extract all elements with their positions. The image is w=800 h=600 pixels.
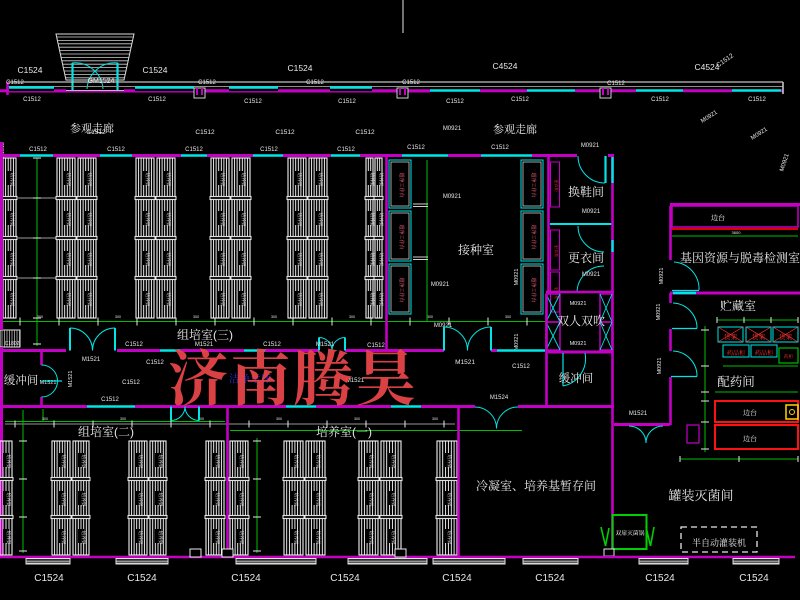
svg-text:接种室: 接种室 — [458, 241, 494, 258]
svg-text:C1512: C1512 — [607, 78, 625, 87]
svg-text:培养架: 培养架 — [368, 455, 375, 469]
svg-text:C1512: C1512 — [148, 94, 166, 103]
svg-text:培养架: 培养架 — [378, 213, 385, 227]
svg-text:M0921: M0921 — [570, 299, 587, 307]
svg-text:更衣间: 更衣间 — [568, 249, 604, 266]
svg-text:M0921: M0921 — [657, 268, 665, 285]
svg-text:C1512: C1512 — [244, 96, 262, 105]
svg-text:培养架: 培养架 — [60, 493, 67, 507]
svg-text:缓冲间: 缓冲间 — [559, 370, 594, 386]
svg-text:C1524: C1524 — [535, 569, 565, 584]
svg-text:培养架: 培养架 — [296, 293, 303, 307]
svg-text:培养架: 培养架 — [9, 173, 16, 187]
svg-text:C1524: C1524 — [127, 569, 157, 584]
svg-text:培养架: 培养架 — [368, 531, 375, 545]
svg-text:培养架: 培养架 — [165, 253, 172, 267]
svg-text:300: 300 — [115, 315, 121, 320]
svg-text:培养架: 培养架 — [165, 173, 172, 187]
svg-text:培养架: 培养架 — [296, 253, 303, 267]
svg-text:超净工作台: 超净工作台 — [398, 224, 405, 249]
svg-text:培养架: 培养架 — [137, 531, 144, 545]
svg-text:半自动灌装机: 半自动灌装机 — [692, 536, 746, 549]
svg-text:C1512: C1512 — [355, 127, 375, 136]
svg-text:培养架: 培养架 — [317, 253, 324, 267]
svg-text:C1512: C1512 — [86, 127, 106, 136]
svg-text:培养架: 培养架 — [144, 253, 151, 267]
svg-text:培养架: 培养架 — [5, 531, 12, 545]
svg-text:冷凝室、培养基暂存间: 冷凝室、培养基暂存间 — [476, 477, 596, 494]
svg-text:C1512: C1512 — [101, 394, 119, 403]
svg-text:C1512: C1512 — [651, 94, 669, 103]
svg-text:培养架: 培养架 — [317, 173, 324, 187]
svg-text:更衣柜: 更衣柜 — [553, 245, 560, 258]
svg-text:配药间: 配药间 — [717, 372, 755, 390]
svg-text:培养架: 培养架 — [293, 455, 300, 469]
svg-text:培养架: 培养架 — [368, 493, 375, 507]
svg-text:培养架: 培养架 — [296, 173, 303, 187]
svg-text:超净工作台: 超净工作台 — [530, 277, 537, 302]
svg-text:培养架: 培养架 — [65, 213, 72, 227]
svg-text:培养架: 培养架 — [9, 213, 16, 227]
svg-text:培养架: 培养架 — [165, 293, 172, 307]
svg-text:培养架: 培养架 — [317, 293, 324, 307]
svg-text:货架: 货架 — [724, 332, 738, 341]
svg-text:培养架: 培养架 — [219, 173, 226, 187]
svg-text:M1524: M1524 — [490, 392, 509, 401]
svg-text:C1524: C1524 — [142, 64, 167, 76]
svg-text:缓冲间: 缓冲间 — [4, 372, 39, 388]
svg-text:C1512: C1512 — [748, 94, 766, 103]
svg-text:超净工作台: 超净工作台 — [530, 224, 537, 249]
svg-text:培养架: 培养架 — [86, 293, 93, 307]
svg-text:3600: 3600 — [732, 230, 742, 236]
svg-text:培养架: 培养架 — [214, 531, 221, 545]
svg-text:培养架: 培养架 — [238, 493, 245, 507]
svg-text:C1524: C1524 — [231, 569, 261, 584]
svg-text:培养架: 培养架 — [219, 293, 226, 307]
svg-text:货架: 货架 — [752, 332, 766, 341]
svg-text:M0921: M0921 — [581, 140, 600, 149]
svg-text:更衣柜: 更衣柜 — [553, 179, 560, 192]
svg-text:C1512: C1512 — [107, 144, 125, 153]
svg-text:培养架: 培养架 — [65, 293, 72, 307]
svg-text:M0921: M0921 — [431, 279, 450, 288]
svg-text:培养架: 培养架 — [157, 531, 164, 545]
svg-text:参观走廊: 参观走廊 — [493, 121, 537, 137]
svg-text:培养架: 培养架 — [293, 493, 300, 507]
svg-text:培养架: 培养架 — [317, 213, 324, 227]
svg-text:培养架: 培养架 — [9, 293, 16, 307]
svg-text:C1512: C1512 — [511, 94, 529, 103]
svg-text:C1524: C1524 — [442, 569, 472, 584]
svg-text:C1512: C1512 — [125, 339, 143, 348]
svg-text:C1524: C1524 — [330, 569, 360, 584]
svg-text:培养架: 培养架 — [390, 531, 397, 545]
svg-text:培养架: 培养架 — [86, 173, 93, 187]
svg-text:培养架: 培养架 — [240, 213, 247, 227]
svg-text:培养架: 培养架 — [238, 455, 245, 469]
svg-text:300: 300 — [193, 315, 199, 320]
svg-text:300: 300 — [37, 315, 43, 320]
svg-text:边台: 边台 — [711, 213, 725, 223]
svg-text:培养架: 培养架 — [214, 493, 221, 507]
svg-text:C1524: C1524 — [645, 569, 675, 584]
svg-text:药品柜: 药品柜 — [727, 348, 745, 357]
svg-text:培养架: 培养架 — [240, 253, 247, 267]
svg-text:M0921: M0921 — [512, 269, 520, 286]
svg-text:培养架: 培养架 — [293, 531, 300, 545]
svg-text:贮藏室: 贮藏室 — [720, 297, 756, 314]
svg-text:培养架: 培养架 — [390, 455, 397, 469]
svg-text:培养架: 培养架 — [5, 493, 12, 507]
svg-text:C1524: C1524 — [34, 569, 64, 584]
svg-text:组培室(二): 组培室(二) — [78, 423, 134, 440]
svg-text:换鞋间: 换鞋间 — [568, 183, 604, 200]
svg-text:C1512: C1512 — [337, 144, 355, 153]
svg-text:培养架: 培养架 — [86, 253, 93, 267]
svg-text:培养架: 培养架 — [86, 213, 93, 227]
svg-text:培养架: 培养架 — [390, 493, 397, 507]
svg-text:边台: 边台 — [743, 408, 757, 418]
svg-text:超净工作台: 超净工作台 — [530, 172, 537, 197]
svg-text:C1512: C1512 — [122, 377, 140, 386]
svg-text:M1521: M1521 — [455, 357, 475, 366]
svg-text:M1521: M1521 — [40, 378, 57, 386]
svg-text:培养架: 培养架 — [60, 455, 67, 469]
svg-text:培养架: 培养架 — [137, 493, 144, 507]
svg-text:C1512: C1512 — [306, 77, 324, 86]
svg-text:M0921: M0921 — [655, 358, 663, 375]
svg-text:培养架: 培养架 — [378, 293, 385, 307]
svg-text:C1524: C1524 — [17, 64, 42, 76]
svg-text:M0921: M0921 — [582, 269, 601, 278]
svg-text:M1521: M1521 — [629, 408, 648, 417]
svg-text:C1524: C1524 — [739, 569, 769, 584]
svg-text:C1512: C1512 — [23, 94, 41, 103]
svg-text:货架: 货架 — [779, 332, 793, 341]
svg-text:C1802: C1802 — [5, 340, 20, 347]
svg-text:C1512: C1512 — [275, 127, 295, 136]
svg-text:C1512: C1512 — [6, 77, 24, 86]
svg-text:培养架: 培养架 — [5, 455, 12, 469]
svg-text:C1512: C1512 — [29, 144, 47, 153]
svg-text:C1512: C1512 — [260, 144, 278, 153]
svg-text:药柜: 药柜 — [784, 353, 794, 360]
svg-text:培养架: 培养架 — [219, 253, 226, 267]
svg-text:C1512: C1512 — [407, 142, 425, 151]
svg-text:培养架: 培养架 — [9, 253, 16, 267]
svg-text:培养架: 培养架 — [446, 531, 453, 545]
svg-text:培养架: 培养架 — [144, 173, 151, 187]
svg-text:C1512: C1512 — [512, 361, 530, 370]
svg-text:培养架: 培养架 — [378, 253, 385, 267]
svg-text:300: 300 — [271, 315, 277, 320]
svg-text:培养架: 培养架 — [446, 493, 453, 507]
svg-text:M0921: M0921 — [570, 339, 587, 347]
svg-text:培养架: 培养架 — [65, 173, 72, 187]
svg-text:边台: 边台 — [743, 434, 757, 444]
svg-text:培养架: 培养架 — [315, 455, 322, 469]
svg-text:双扉灭菌锅: 双扉灭菌锅 — [616, 528, 645, 537]
svg-text:培养架: 培养架 — [157, 455, 164, 469]
svg-text:300: 300 — [349, 315, 355, 320]
svg-text:培养架: 培养架 — [219, 213, 226, 227]
svg-text:培养架: 培养架 — [80, 455, 87, 469]
svg-text:M0921: M0921 — [443, 191, 462, 200]
svg-text:300: 300 — [432, 417, 438, 422]
svg-text:C4524: C4524 — [492, 60, 517, 72]
svg-text:培养架: 培养架 — [157, 493, 164, 507]
svg-text:培养架: 培养架 — [60, 531, 67, 545]
svg-text:M0921: M0921 — [512, 334, 520, 351]
svg-text:C1512: C1512 — [402, 77, 420, 86]
svg-text:培养架: 培养架 — [446, 455, 453, 469]
svg-text:培养架: 培养架 — [165, 213, 172, 227]
svg-text:双人双吹: 双人双吹 — [557, 312, 605, 329]
svg-text:培养架: 培养架 — [80, 493, 87, 507]
svg-text:超净工作台: 超净工作台 — [398, 277, 405, 302]
svg-text:培养架: 培养架 — [315, 531, 322, 545]
svg-text:药品柜: 药品柜 — [755, 348, 773, 357]
svg-text:GM1524: GM1524 — [88, 76, 115, 86]
svg-text:C1512: C1512 — [146, 357, 164, 366]
svg-text:培养架: 培养架 — [378, 173, 385, 187]
svg-text:M1521: M1521 — [66, 371, 74, 388]
svg-text:培养架: 培养架 — [137, 455, 144, 469]
svg-text:C1512: C1512 — [491, 142, 509, 151]
svg-text:M1521: M1521 — [82, 354, 101, 363]
svg-text:培养架: 培养架 — [65, 253, 72, 267]
svg-text:300: 300 — [505, 315, 511, 320]
svg-text:C1512: C1512 — [446, 96, 464, 105]
svg-text:培养架: 培养架 — [214, 455, 221, 469]
svg-text:罐装灭菌间: 罐装灭菌间 — [668, 485, 733, 504]
svg-text:超净工作台: 超净工作台 — [398, 172, 405, 197]
svg-text:M0921: M0921 — [582, 206, 601, 215]
svg-text:培养架: 培养架 — [315, 493, 322, 507]
svg-text:基因资源与脱毒检测室: 基因资源与脱毒检测室 — [680, 249, 800, 266]
svg-text:300: 300 — [427, 315, 433, 320]
svg-text:济南腾昊: 济南腾昊 — [168, 332, 418, 418]
svg-text:培养架: 培养架 — [80, 531, 87, 545]
svg-text:M0921: M0921 — [654, 304, 662, 321]
svg-text:C1524: C1524 — [287, 62, 312, 74]
svg-text:C1512: C1512 — [185, 144, 203, 153]
svg-text:培养架: 培养架 — [144, 213, 151, 227]
svg-text:培养架: 培养架 — [144, 293, 151, 307]
svg-text:培养架: 培养架 — [238, 531, 245, 545]
svg-text:培养架: 培养架 — [240, 293, 247, 307]
svg-text:培养架: 培养架 — [240, 173, 247, 187]
svg-text:M0921: M0921 — [443, 123, 462, 132]
svg-text:C1512: C1512 — [195, 127, 215, 136]
svg-text:培养室(一): 培养室(一) — [316, 423, 372, 440]
svg-text:培养架: 培养架 — [296, 213, 303, 227]
svg-text:C1512: C1512 — [338, 96, 356, 105]
svg-text:C1512: C1512 — [198, 77, 216, 86]
